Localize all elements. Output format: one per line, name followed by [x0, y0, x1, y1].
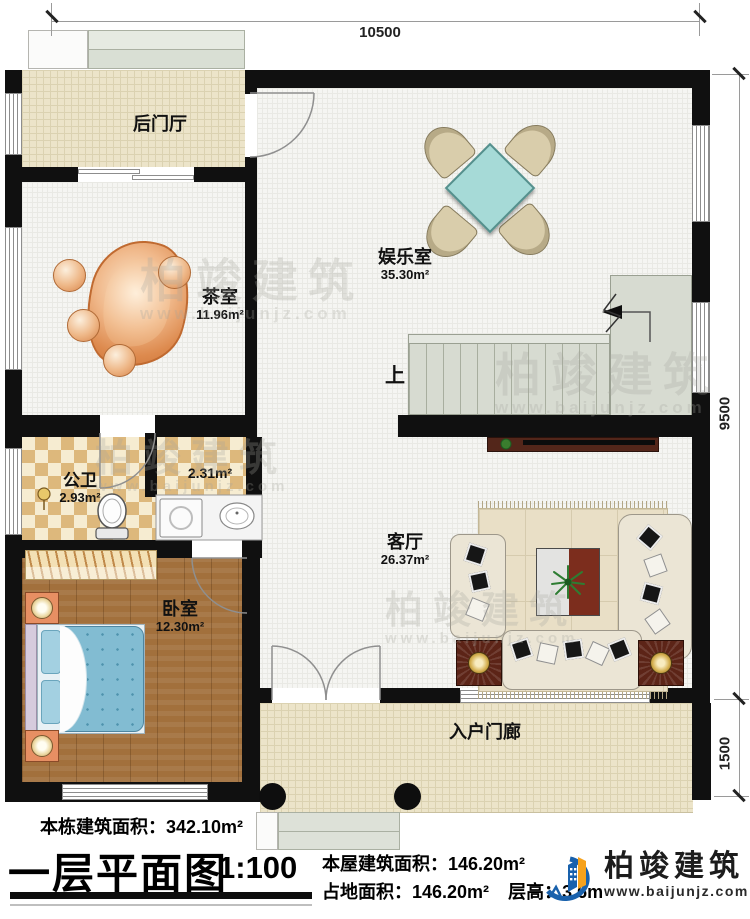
label-laundry: 2.31m² [175, 465, 245, 481]
label-stairs-up: 上 [380, 366, 410, 387]
stair-treads [408, 343, 610, 415]
dim-top-width: 10500 [340, 24, 420, 41]
nightstand-bottom [25, 730, 59, 762]
pillow [536, 642, 559, 665]
dim-ext-top-left [51, 3, 52, 36]
porch-steps-line [278, 831, 400, 832]
footprint-value: 146.20m² [412, 882, 489, 902]
dim-line-right [739, 75, 740, 798]
lamp-left [468, 652, 490, 674]
dim-ext-right-3 [714, 796, 749, 797]
wall-living-bottom-2 [380, 688, 460, 703]
pillow [563, 639, 584, 660]
total-area-label: 本栋建筑面积： [40, 817, 166, 837]
room-area: 2.31m² [175, 465, 245, 481]
stair-landing [610, 275, 692, 416]
dim-right-height: 9500 [717, 384, 734, 444]
tea-stool-3 [67, 309, 100, 342]
label-entertainment: 娱乐室 35.30m² [350, 248, 460, 282]
wall-backhall-right-top [245, 88, 257, 94]
porch-steps-platform [256, 812, 278, 850]
wall-bath-top-right [155, 415, 257, 437]
rug-fringe-top [478, 501, 668, 508]
nightstand-top [25, 592, 59, 624]
title-underline-thin [10, 904, 312, 906]
lamp-nightstand-top [31, 597, 53, 619]
wall-top [245, 70, 710, 88]
lamp-right [650, 652, 672, 674]
coffee-table [536, 548, 600, 616]
porch-column-2 [394, 783, 421, 810]
pillow [468, 570, 491, 593]
wall-left-1 [5, 70, 22, 93]
porch-floor [260, 703, 693, 813]
wall-bath-top-left [5, 415, 100, 437]
room-name: 娱乐室 [350, 248, 460, 267]
label-bedroom: 卧室 12.30m² [135, 600, 225, 634]
tea-stool-2 [158, 256, 191, 289]
label-back-hall: 后门厅 [105, 115, 215, 134]
total-building-area: 本栋建筑面积：342.10m² [40, 813, 243, 839]
back-steps-line [88, 49, 245, 50]
brand-logo: 柏竣建筑 www.baijunjz.com [540, 845, 740, 911]
sliding-door-leaf-2 [132, 175, 194, 180]
wall-right-3 [692, 393, 710, 703]
brand-website: www.baijunjz.com [604, 883, 749, 899]
room-area: 35.30m² [350, 267, 460, 282]
scale-text: 1:100 [218, 850, 297, 886]
tv-screen [523, 440, 655, 445]
room-name: 茶室 [175, 288, 265, 307]
dim-porch-height: 1500 [717, 724, 734, 784]
wall-bath-east [246, 437, 262, 540]
label-tea-room: 茶室 11.96m² [175, 288, 265, 322]
window-stairs [692, 302, 710, 393]
brand-name: 柏竣建筑 [604, 851, 749, 883]
wall-bedroom-east [242, 558, 260, 802]
wall-bath-partition [145, 433, 157, 497]
room-name: 入户门廊 [415, 723, 555, 742]
floor-area-value: 146.20m² [448, 854, 525, 874]
room-name: 客厅 [360, 533, 450, 552]
wall-left-2 [5, 155, 22, 227]
label-porch: 入户门廊 [415, 723, 555, 742]
wall-under-stairs [398, 415, 692, 437]
footprint-label: 占地面积： [322, 882, 412, 902]
wall-living-bottom-1 [260, 688, 272, 703]
bed-pillow-1 [41, 630, 61, 674]
room-area: 2.93m² [45, 490, 115, 505]
tea-stool-4 [103, 344, 136, 377]
stairs-up-text: 上 [380, 366, 410, 387]
wardrobe [25, 550, 157, 580]
wall-porch-right [692, 703, 711, 800]
room-name: 后门厅 [105, 115, 215, 134]
window-bedroom [62, 784, 208, 800]
wall-bedroom-top-right [242, 540, 262, 558]
wall-left-4 [5, 535, 22, 802]
porch-column-1 [259, 783, 286, 810]
title-underline [10, 892, 312, 899]
room-area: 11.96m² [175, 307, 265, 322]
floor-area-label: 本屋建筑面积： [322, 854, 448, 874]
wall-hall-tea-right [194, 167, 257, 182]
rug-fringe-bottom [478, 692, 668, 699]
room-area: 12.30m² [135, 619, 225, 634]
lamp-nightstand-bottom [31, 735, 53, 757]
window-tea-room [5, 227, 22, 370]
wall-right-1 [692, 70, 710, 125]
label-bath: 公卫 2.93m² [45, 472, 115, 505]
label-living: 客厅 26.37m² [360, 533, 450, 567]
total-area-value: 342.10m² [166, 817, 243, 837]
window-entertainment [692, 125, 710, 222]
bed-pillow-2 [41, 680, 61, 724]
window-bathroom [5, 448, 22, 535]
floor-plan-sheet: 后门厅 茶室 11.96m² 娱乐室 35.30m² 上 公卫 2.93m² 2… [0, 0, 750, 919]
room-name: 公卫 [45, 472, 115, 490]
room-name: 卧室 [135, 600, 225, 619]
room-area: 26.37m² [360, 552, 450, 567]
bed-headboard [25, 624, 37, 734]
dim-line-top [52, 21, 700, 22]
dim-ext-top-right [699, 3, 700, 36]
back-steps-platform [28, 30, 88, 69]
window-back-hall [5, 93, 22, 155]
floor-area-line: 本屋建筑面积：146.20m² [322, 850, 525, 876]
wall-hall-tea-left [22, 167, 78, 182]
wall-right-2 [692, 222, 710, 302]
dim-ext-right-2 [714, 699, 749, 700]
sliding-door-leaf-1 [78, 169, 140, 174]
brand-logo-icon [540, 847, 600, 909]
tea-stool-1 [53, 259, 86, 292]
